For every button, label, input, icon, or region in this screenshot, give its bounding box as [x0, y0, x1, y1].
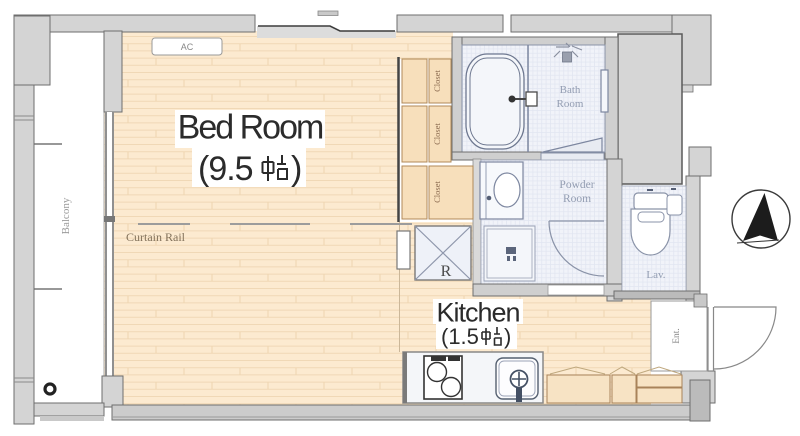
svg-text:Lav.: Lav. [646, 269, 665, 281]
svg-text:Room: Room [563, 193, 591, 205]
svg-text:(9.5: (9.5 [198, 150, 253, 188]
svg-text:Closet: Closet [432, 70, 442, 92]
svg-text:Closet: Closet [432, 181, 442, 203]
svg-text:): ) [291, 150, 302, 188]
svg-text:Ent.: Ent. [672, 328, 682, 344]
svg-text:Room: Room [557, 98, 584, 110]
svg-text:R: R [441, 263, 452, 280]
svg-text:Bath: Bath [560, 84, 581, 96]
svg-text:): ) [504, 324, 511, 349]
svg-text:Curtain Rail: Curtain Rail [126, 230, 186, 244]
svg-text:Balcony: Balcony [60, 197, 72, 234]
svg-text:(1.5: (1.5 [441, 324, 479, 349]
svg-text:Bed Room: Bed Room [178, 109, 323, 147]
svg-text:AC: AC [181, 42, 194, 52]
svg-text:Kitchen: Kitchen [436, 298, 519, 328]
svg-text:Powder: Powder [559, 179, 594, 191]
svg-text:Closet: Closet [432, 123, 442, 145]
